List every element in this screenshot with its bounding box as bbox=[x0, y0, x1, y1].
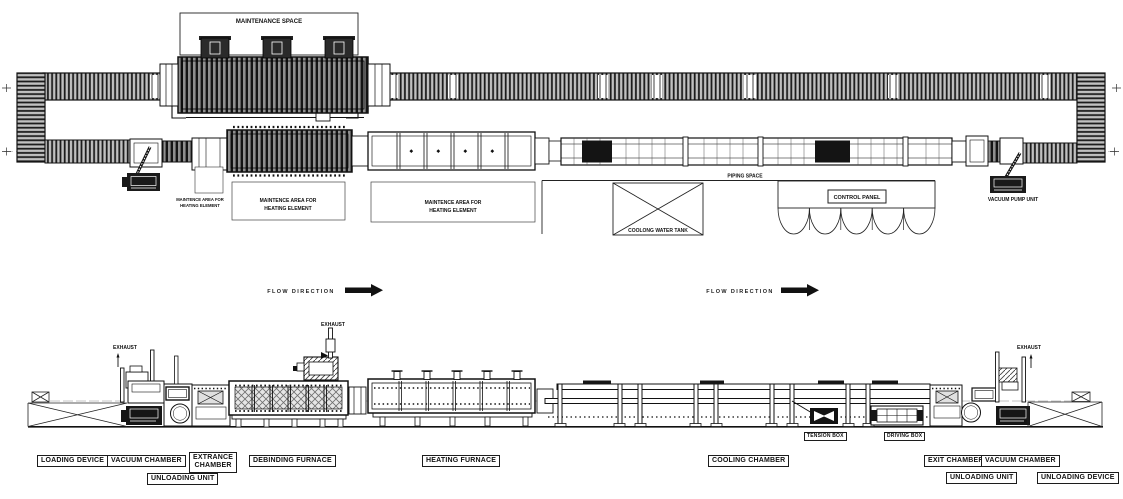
tension-box-elev bbox=[792, 401, 838, 424]
maintence-area-box-1: MAINTENCE AREA FOR HEATING ELEMENT bbox=[232, 182, 345, 220]
flow-arrow-head bbox=[371, 284, 383, 297]
extrance-line2: CHAMBER bbox=[193, 462, 233, 470]
maintence-area-box-2: MAINTENCE AREA FOR HEATING ELEMENT bbox=[371, 182, 535, 222]
maintenance-space-label: MAINTENANCE SPACE bbox=[236, 19, 302, 25]
exhaust-label-right: EXHAUST bbox=[1017, 345, 1041, 351]
maintence-box1-line2: HEATING ELEMENT bbox=[264, 206, 311, 212]
maintence-small-line1: MAINTENCE AREA FOR bbox=[176, 197, 224, 202]
extrance-chamber-plan bbox=[192, 138, 227, 170]
heating-furnace-elev bbox=[368, 371, 553, 426]
label-unloading-device: UNLOADING DEVICE bbox=[1037, 472, 1119, 484]
cooling-water-tank-label: COOLONG WATER TANK bbox=[628, 228, 688, 234]
cooling-chamber-elev bbox=[545, 381, 935, 427]
unloading-unit-elev-left: EXHAUST bbox=[113, 345, 164, 425]
furnace-coupler bbox=[349, 387, 366, 414]
elevation-view: EXHAUST bbox=[28, 322, 1103, 427]
label-cooling-chamber: COOLING CHAMBER bbox=[708, 455, 789, 467]
return-conveyor-right-turn bbox=[1077, 73, 1105, 162]
control-panel: CONTROL PANEL bbox=[778, 181, 935, 234]
plan-view: MAINTENANCE SPACE bbox=[2, 13, 1121, 235]
maintence-box2-line1: MAINTENCE AREA FOR bbox=[425, 200, 482, 206]
label-vacuum-chamber-left: VACUUM CHAMBER bbox=[107, 455, 186, 467]
flow-arrow-head bbox=[807, 284, 819, 297]
furnace-end-cap-right bbox=[368, 64, 390, 106]
flow-direction-right: FLOW DIRECTION bbox=[706, 284, 819, 297]
cooling-water-tank: COOLONG WATER TANK bbox=[613, 183, 703, 235]
exhaust-pipe bbox=[1022, 357, 1026, 402]
exhaust-label-mid: EXHAUST bbox=[321, 322, 345, 328]
heating-furnace-plan bbox=[352, 132, 549, 170]
extrance-line1: EXTRANCE bbox=[193, 454, 233, 462]
label-driving-box: DRIVING BOX bbox=[884, 432, 925, 441]
exhaust-stack-elev bbox=[321, 328, 335, 359]
debinding-furnace-elev: EXHAUST bbox=[229, 322, 348, 427]
exit-chamber-elev bbox=[930, 385, 996, 426]
label-heating-furnace: HEATING FURNACE bbox=[422, 455, 500, 467]
flow-direction-label: FLOW DIRECTION bbox=[706, 289, 774, 295]
exhaust-pipe bbox=[996, 352, 1000, 402]
furnace-end-cap-left bbox=[160, 64, 178, 106]
exhaust-stack-3 bbox=[323, 36, 355, 58]
unloading-ramp bbox=[1028, 392, 1102, 427]
flow-direction-label: FLOW DIRECTION bbox=[267, 289, 335, 295]
exhaust-stack-1 bbox=[199, 36, 231, 58]
maintence-area-small: MAINTENCE AREA FOR HEATING ELEMENT bbox=[176, 167, 224, 208]
maintence-small-line2: HEATING ELEMENT bbox=[180, 203, 220, 208]
exhaust-arrow-left bbox=[117, 353, 120, 358]
flow-arrow-shaft bbox=[345, 288, 371, 294]
cooling-line-plan bbox=[549, 137, 952, 166]
label-loading-device: LOADING DEVICE bbox=[37, 455, 108, 467]
loading-ramp bbox=[28, 392, 127, 427]
infeed-conveyor-plan bbox=[45, 140, 130, 163]
extrance-chamber-elev bbox=[192, 385, 230, 426]
outfeed-conveyor-plan bbox=[1023, 143, 1077, 163]
furnace-line-drawing: MAINTENANCE SPACE bbox=[0, 0, 1123, 499]
vacuum-pump-unit-label: VACUUM PUMP UNIT bbox=[988, 197, 1038, 203]
flow-arrow-shaft bbox=[781, 288, 807, 294]
control-panel-door-arcs bbox=[778, 208, 935, 234]
label-unloading-unit-right: UNLOADING UNIT bbox=[946, 472, 1017, 484]
label-unloading-unit-left: UNLOADING UNIT bbox=[147, 473, 218, 485]
debinding-furnace-plan bbox=[227, 127, 352, 176]
label-debinding-furnace: DEBINDING FURNACE bbox=[249, 455, 336, 467]
control-panel-label: CONTROL PANEL bbox=[834, 195, 881, 201]
piping-space-label: PIPING SPACE bbox=[727, 174, 763, 180]
unloading-unit-elev-right: EXHAUST bbox=[996, 345, 1041, 425]
maintence-box2-line2: HEATING ELEMENT bbox=[429, 208, 476, 214]
exhaust-pipe bbox=[121, 368, 125, 402]
flow-direction-left: FLOW DIRECTION bbox=[267, 284, 383, 297]
cooling-gate-block-1 bbox=[582, 141, 612, 163]
exhaust-arrow-right bbox=[1030, 354, 1033, 359]
exhaust-stack-2 bbox=[261, 36, 293, 58]
cooling-gate-block-2 bbox=[815, 141, 850, 163]
label-exit-chamber: EXIT CHAMBER bbox=[924, 455, 988, 467]
afterburner-unit bbox=[293, 357, 338, 380]
driving-box-elev bbox=[871, 406, 923, 425]
label-vacuum-chamber-right: VACUUM CHAMBER bbox=[981, 455, 1060, 467]
chamber-pipe bbox=[175, 356, 179, 384]
vacuum-chamber-elev-left bbox=[164, 356, 192, 426]
exhaust-label-left: EXHAUST bbox=[113, 345, 137, 351]
drawing-canvas: MAINTENANCE SPACE bbox=[0, 0, 1123, 499]
gate-block-plan-left bbox=[163, 141, 192, 162]
label-tension-box: TENSION BOX bbox=[804, 432, 847, 441]
label-extrance-chamber: EXTRANCECHAMBER bbox=[189, 452, 237, 473]
return-conveyor-left-turn bbox=[17, 73, 45, 162]
maintence-box1-line1: MAINTENCE AREA FOR bbox=[260, 198, 317, 204]
